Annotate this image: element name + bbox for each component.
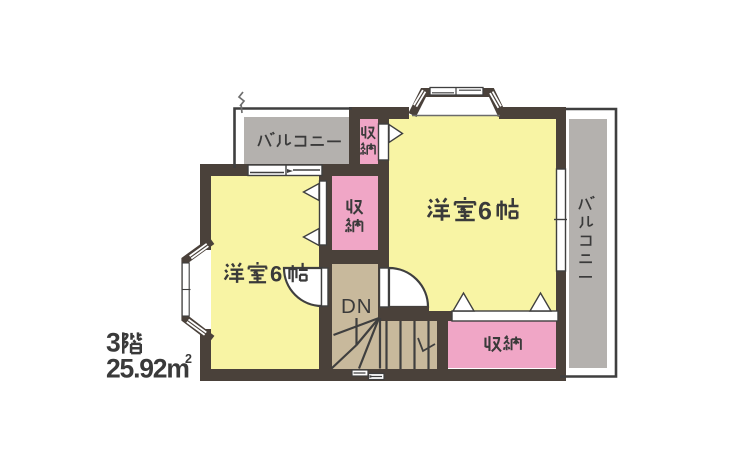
svg-text:6: 6 <box>478 198 492 226</box>
svg-text:6: 6 <box>270 262 282 287</box>
svg-text:25.92m: 25.92m <box>106 354 189 384</box>
svg-text:DN: DN <box>341 295 373 318</box>
svg-text:2: 2 <box>185 352 192 366</box>
